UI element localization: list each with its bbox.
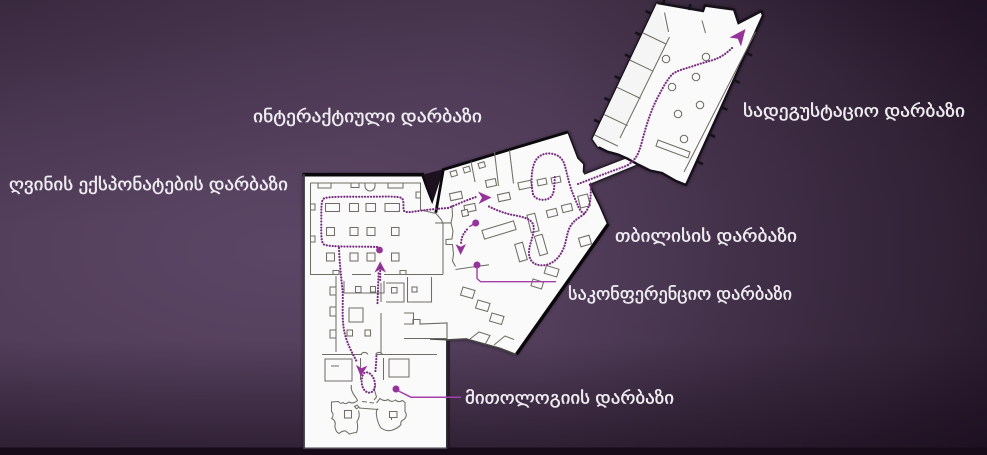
svg-text:თბილისის დარბაზი: თბილისის დარბაზი bbox=[615, 227, 797, 246]
svg-text:ღვინის ექსპონატების დარბაზი: ღვინის ექსპონატების დარბაზი bbox=[9, 175, 288, 195]
svg-text:ინტერაქტიული დარბაზი: ინტერაქტიული დარბაზი bbox=[253, 107, 482, 127]
svg-text:მითოლოგიის დარბაზი: მითოლოგიის დარბაზი bbox=[465, 389, 674, 408]
svg-text:სადეგუსტაციო დარბაზი: სადეგუსტაციო დარბაზი bbox=[743, 102, 965, 122]
svg-text:საკონფერენციო დარბაზი: საკონფერენციო დარბაზი bbox=[568, 285, 792, 305]
